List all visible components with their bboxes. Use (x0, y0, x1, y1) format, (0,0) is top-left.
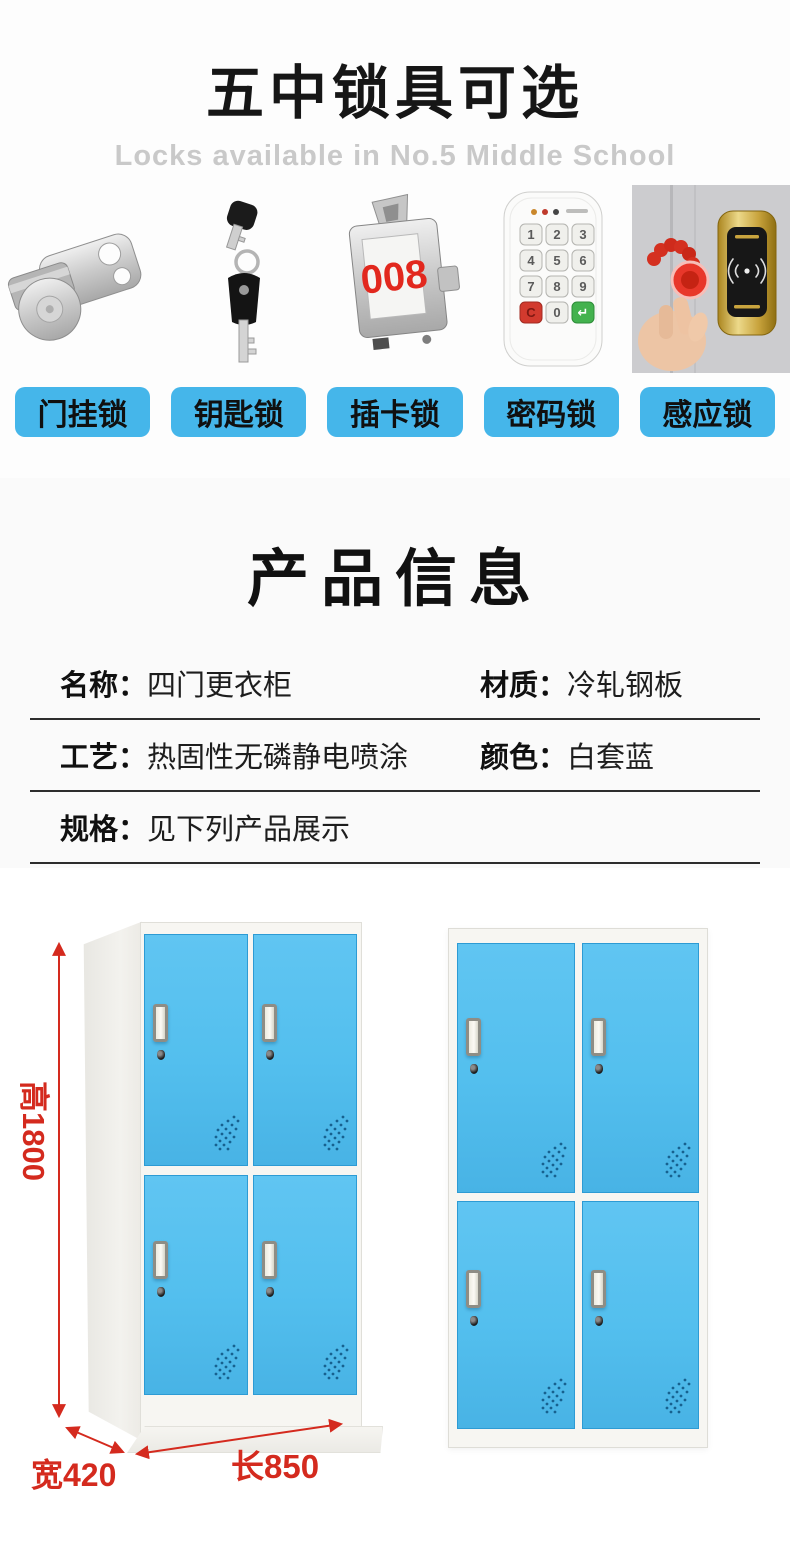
lock-type-chip-card: 插卡锁 (327, 387, 462, 437)
keypad-key: 0 (553, 305, 560, 320)
product-info-title: 产品信息 (0, 478, 790, 618)
cam-lock-icon (4, 186, 154, 372)
key-lock-icon (162, 186, 312, 372)
spec-row: 规格： 见下列产品展示 (30, 792, 760, 864)
length-dimension-label: 长850 (231, 1448, 319, 1485)
keypad-indicator-light (553, 209, 559, 215)
vent-holes (322, 1343, 349, 1382)
keyhole (157, 1050, 165, 1060)
keypad-key: 8 (553, 279, 560, 294)
keyhole (266, 1050, 274, 1060)
lock-type-chip-induction: 感应锁 (640, 387, 775, 437)
spec-row: 工艺： 热固性无磷静电喷涂 颜色： 白套蓝 (30, 720, 760, 792)
spec-process: 工艺： 热固性无磷静电喷涂 (30, 734, 480, 776)
spec-color: 颜色： 白套蓝 (480, 734, 760, 776)
spec-label: 工艺： (60, 734, 147, 776)
spec-size: 规格： 见下列产品展示 (30, 806, 480, 848)
spec-value: 见下列产品展示 (147, 806, 350, 848)
keypad-indicator-light (531, 209, 537, 215)
rfid-lock-image (632, 185, 790, 373)
keyhole (595, 1064, 603, 1074)
spec-value: 白套蓝 (567, 734, 654, 776)
door-handle (153, 1241, 168, 1279)
spec-label: 规格： (60, 806, 147, 848)
spec-value: 四门更衣柜 (147, 662, 292, 704)
vent-holes (322, 1114, 349, 1153)
door-handle (466, 1018, 481, 1056)
rfid-lock-icon (632, 185, 790, 373)
lock-images-row: 008 1 2 (0, 185, 790, 373)
locks-section: 五中锁具可选 Locks available in No.5 Middle Sc… (0, 0, 790, 478)
vent-holes (540, 1377, 567, 1416)
lock-type-chip-key: 钥匙锁 (171, 387, 306, 437)
keyhole (595, 1316, 603, 1326)
card-lock-image: 008 (316, 185, 474, 373)
keypad-lock-image: 1 2 3 4 5 6 7 8 9 (474, 185, 632, 373)
spec-material: 材质： 冷轧钢板 (480, 662, 760, 704)
locker-base (127, 1426, 383, 1453)
door-handle (466, 1270, 481, 1308)
spec-name: 名称： 四门更衣柜 (30, 662, 480, 704)
lock-type-chip-password: 密码锁 (484, 387, 619, 437)
locker-side-panel (80, 920, 142, 1446)
door-handle (262, 1241, 277, 1279)
product-display-section: 高1800 宽420 长850 (0, 868, 790, 1567)
keypad-key: 3 (579, 227, 586, 242)
locker-door (457, 943, 575, 1193)
keyhole (157, 1287, 165, 1297)
spec-label: 名称： (60, 662, 147, 704)
door-handle (153, 1004, 168, 1042)
vent-holes (213, 1114, 240, 1153)
door-handle (591, 1018, 606, 1056)
vent-holes (664, 1141, 691, 1180)
keypad-key: 9 (579, 279, 586, 294)
keypad-key: 7 (527, 279, 534, 294)
card-lock-icon: 008 (320, 186, 470, 372)
locker-door (144, 934, 248, 1166)
spec-row: 名称： 四门更衣柜 材质： 冷轧钢板 (30, 648, 760, 720)
locks-title: 五中锁具可选 (0, 0, 790, 130)
keypad-key: 5 (553, 253, 560, 268)
width-dimension-label: 宽420 (31, 1457, 116, 1493)
lock-type-chip-hang: 门挂锁 (15, 387, 150, 437)
lock-type-chips: 门挂锁 钥匙锁 插卡锁 密码锁 感应锁 (0, 387, 790, 437)
keypad-key: 1 (527, 227, 534, 242)
spec-value: 冷轧钢板 (567, 662, 683, 704)
locker-front (140, 922, 362, 1446)
locker-perspective-image (80, 920, 372, 1452)
vent-holes (540, 1141, 567, 1180)
key-lock-image (158, 185, 316, 373)
product-info-section: 产品信息 名称： 四门更衣柜 材质： 冷轧钢板 工艺： 热固性无磷静电喷涂 颜色… (0, 478, 790, 868)
locker-door (144, 1175, 248, 1395)
door-handle (262, 1004, 277, 1042)
locker-front-image (448, 928, 708, 1448)
keyhole (470, 1316, 478, 1326)
locker-door (582, 1201, 700, 1429)
locker-door (582, 943, 700, 1193)
door-handle (591, 1270, 606, 1308)
keyhole (470, 1064, 478, 1074)
locker-door (253, 934, 357, 1166)
keypad-key-clear: C (526, 305, 536, 320)
keypad-key: 6 (579, 253, 586, 268)
keypad-key: 4 (527, 253, 535, 268)
card-lock-number: 008 (359, 252, 430, 303)
spec-value: 热固性无磷静电喷涂 (147, 734, 408, 776)
locker-door (457, 1201, 575, 1429)
spec-label: 材质： (480, 662, 567, 704)
keypad-key-enter: ↵ (578, 305, 589, 320)
vent-holes (664, 1377, 691, 1416)
spec-label: 颜色： (480, 734, 567, 776)
keypad-lock-icon: 1 2 3 4 5 6 7 8 9 (478, 186, 628, 372)
locker-door (253, 1175, 357, 1395)
keypad-indicator-light (542, 209, 548, 215)
vent-holes (213, 1343, 240, 1382)
height-dimension-label: 高1800 (16, 1081, 51, 1181)
keyhole (266, 1287, 274, 1297)
cam-lock-image (0, 185, 158, 373)
locks-subtitle: Locks available in No.5 Middle School (0, 140, 790, 173)
keypad-key: 2 (553, 227, 560, 242)
spec-table: 名称： 四门更衣柜 材质： 冷轧钢板 工艺： 热固性无磷静电喷涂 颜色： 白套蓝… (30, 648, 760, 864)
